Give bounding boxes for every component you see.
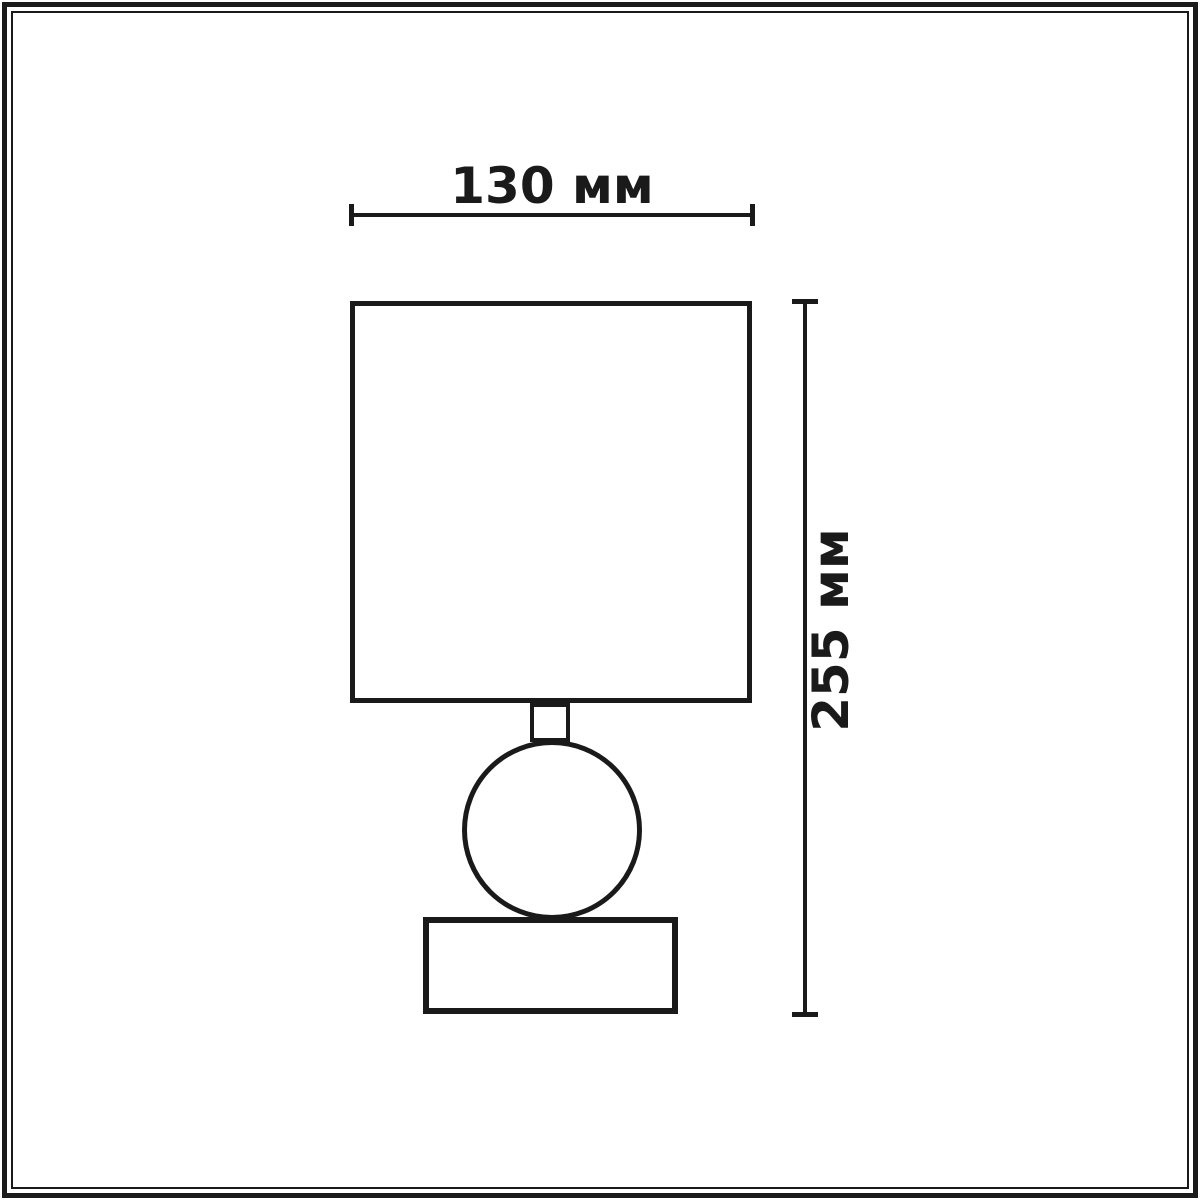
height-dimension-tick-bottom [792, 1012, 818, 1017]
width-dimension-tick-right [750, 204, 755, 226]
lamp-neck [530, 703, 570, 742]
lamp-sphere-body [462, 740, 642, 920]
height-dimension-tick-top [792, 299, 818, 304]
lampshade-outline [350, 301, 752, 703]
lamp-base [423, 917, 678, 1014]
width-dimension-label: 130 мм [450, 161, 654, 211]
diagram-canvas: 130 мм 255 мм [0, 0, 1200, 1200]
width-dimension-tick-left [349, 204, 354, 226]
height-dimension-label: 255 мм [806, 528, 856, 732]
